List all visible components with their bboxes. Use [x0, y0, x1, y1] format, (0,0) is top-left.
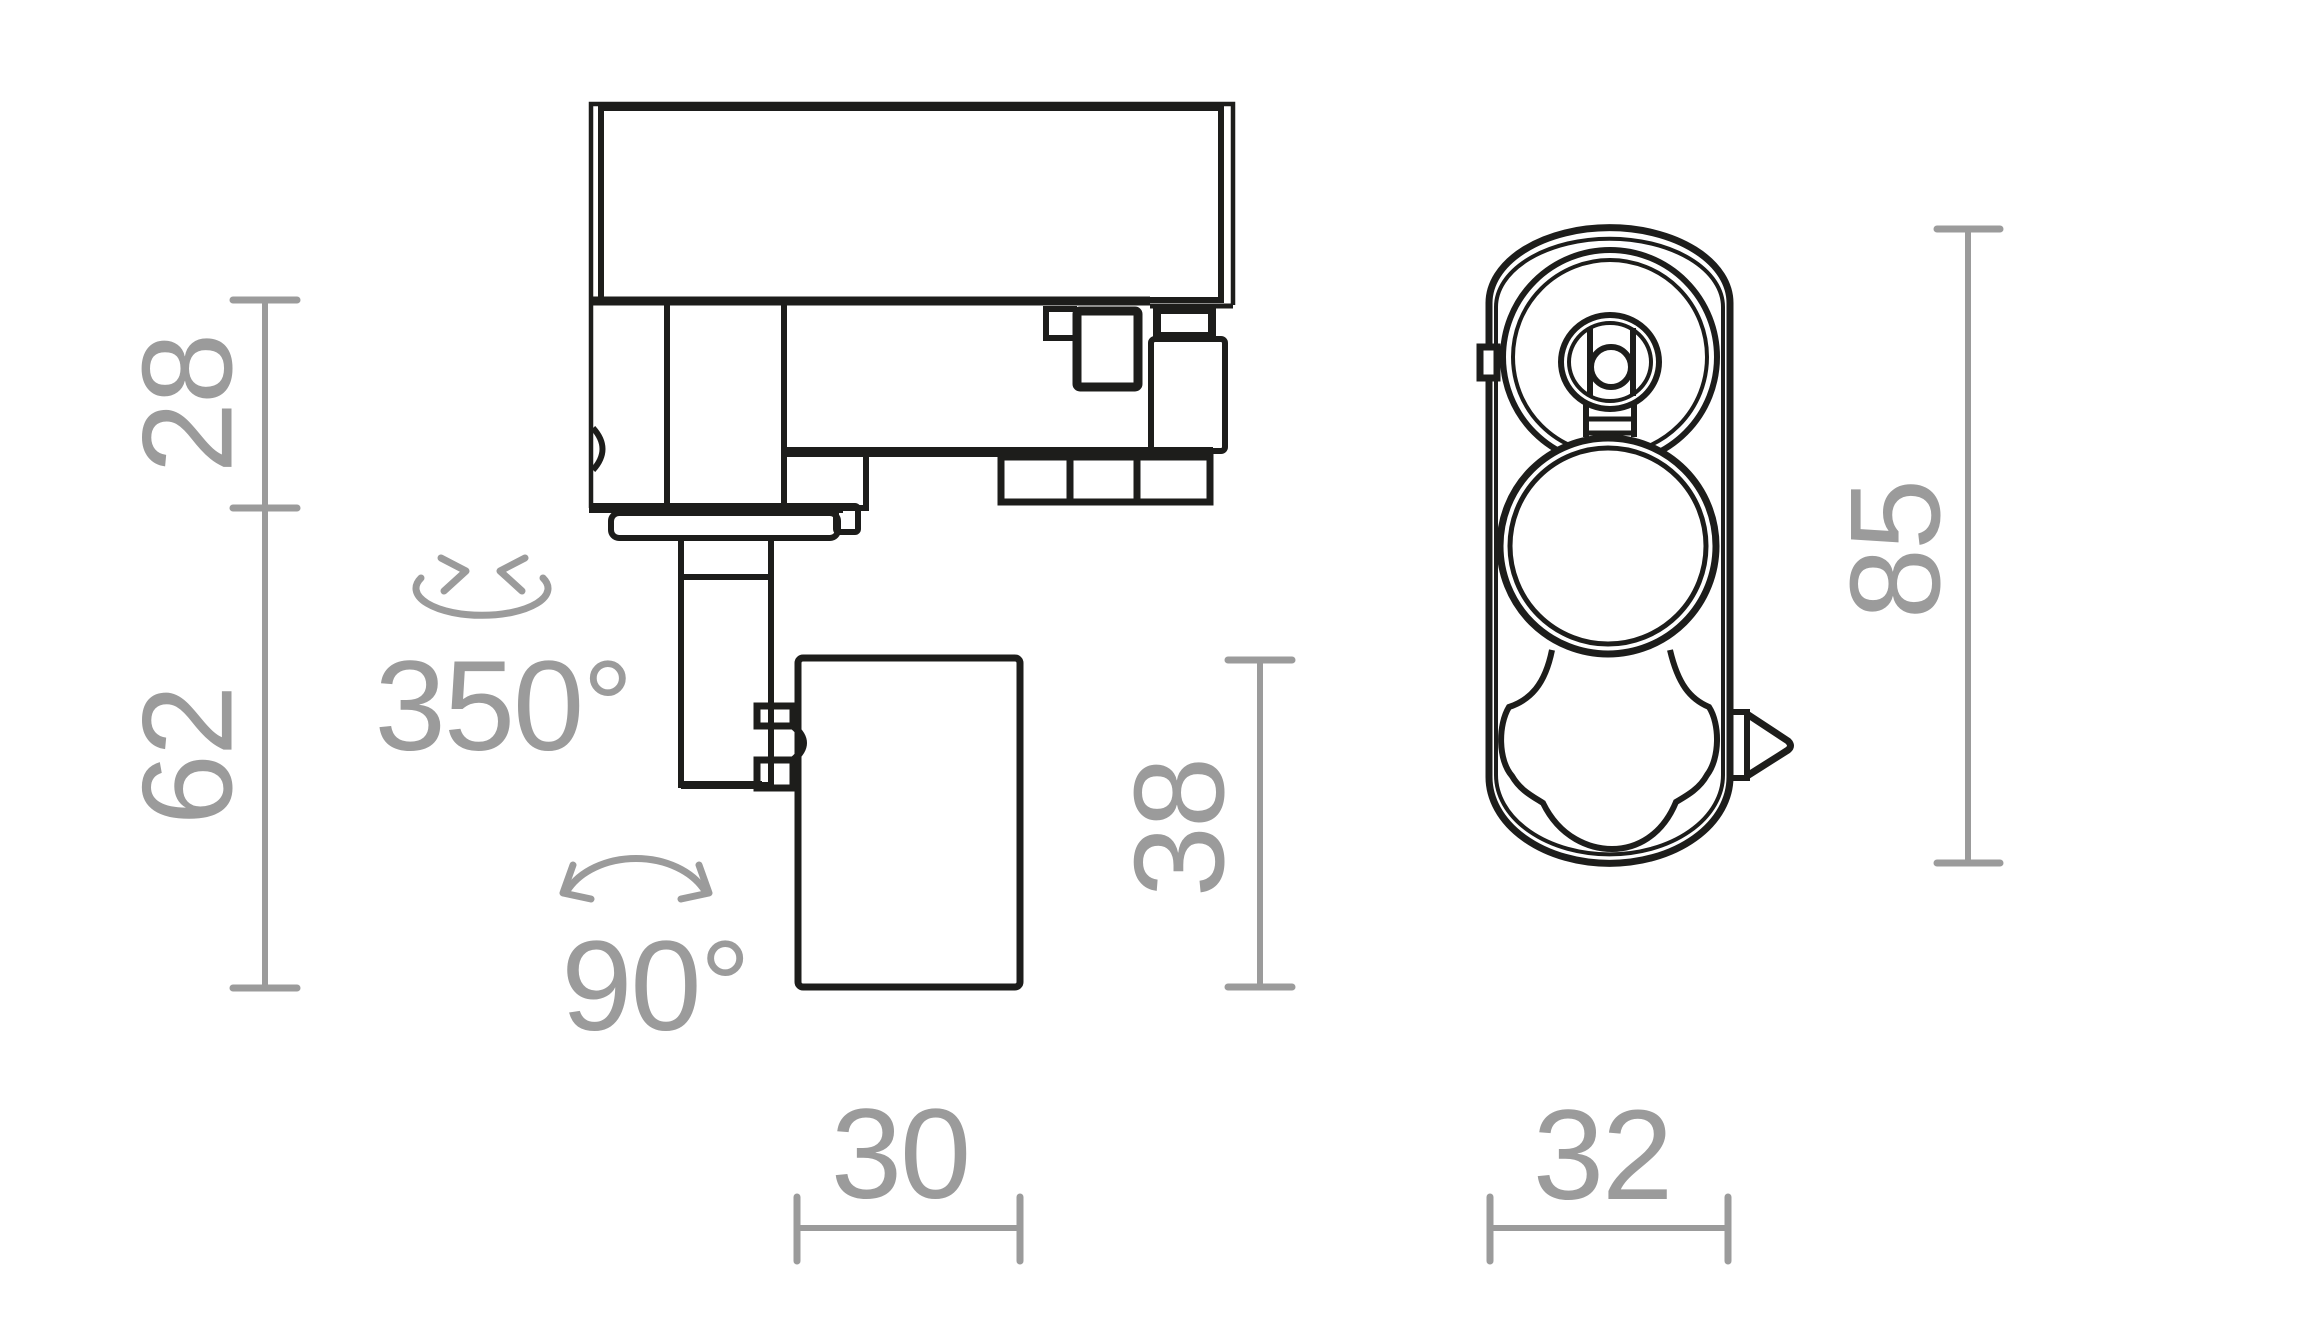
- rotate-swivel-arrowhead-left-icon: [441, 558, 466, 591]
- rotation-label-90: 90°: [561, 915, 749, 1058]
- stud-center-hole: [1591, 347, 1631, 387]
- dimension-drawing: 28 62 38 30 85 32: [0, 0, 2300, 1336]
- dim-label-30: 30: [831, 1083, 969, 1226]
- dim-label-85: 85: [1825, 481, 1968, 619]
- dimension-38: 38: [1109, 660, 1293, 987]
- bottom-view: [1480, 228, 1791, 864]
- contact-tab: [1077, 311, 1138, 387]
- contact-block-tall: [1151, 339, 1225, 451]
- housing-box: [601, 108, 1221, 300]
- hinge-tab-top: [757, 706, 793, 726]
- flange-plate: [611, 513, 838, 538]
- dimension-28-62: 28 62: [117, 300, 298, 988]
- tilt-90-annotation: 90°: [561, 858, 749, 1058]
- track-contact-assembly: [784, 309, 1225, 502]
- rotation-label-350: 350°: [375, 635, 632, 778]
- latch-base: [1730, 712, 1747, 778]
- spot-head: [798, 658, 1020, 987]
- side-notch: [1480, 347, 1497, 378]
- drawing-canvas: 28 62 38 30 85 32: [0, 0, 2300, 1336]
- locking-knob-scallop: [1501, 650, 1717, 849]
- pointer-latch: [1730, 712, 1791, 778]
- dim-label-32: 32: [1533, 1084, 1671, 1227]
- rotation-annotations: 350° 90°: [375, 558, 749, 1058]
- dim-label-28: 28: [117, 335, 260, 473]
- swivel-arm: [681, 538, 771, 785]
- body-step-block: [784, 452, 866, 508]
- contact-bracket: [1046, 309, 1077, 338]
- rotate-swivel-arrowhead-right-icon: [500, 558, 525, 591]
- mounting-flange: [589, 506, 858, 538]
- dim-label-38: 38: [1109, 759, 1252, 897]
- swivel-350-annotation: 350°: [375, 558, 632, 778]
- upper-circle-inner: [1513, 260, 1707, 454]
- stud-outer-ring: [1561, 315, 1659, 409]
- rotate-swivel-arc-icon: [416, 578, 548, 615]
- dimension-30: 30: [797, 1083, 1020, 1261]
- body-screw-arc: [593, 428, 603, 470]
- contact-block-small: [1157, 310, 1212, 336]
- lens-circle-outer: [1500, 438, 1716, 654]
- tilt-arc-icon: [567, 858, 705, 891]
- latch-triangle: [1747, 714, 1791, 776]
- contact-strip: [1001, 457, 1210, 502]
- adapter-body: [593, 301, 866, 508]
- dimension-85: 85: [1825, 229, 2001, 863]
- dimension-32: 32: [1490, 1084, 1728, 1261]
- dim-label-62: 62: [117, 687, 260, 825]
